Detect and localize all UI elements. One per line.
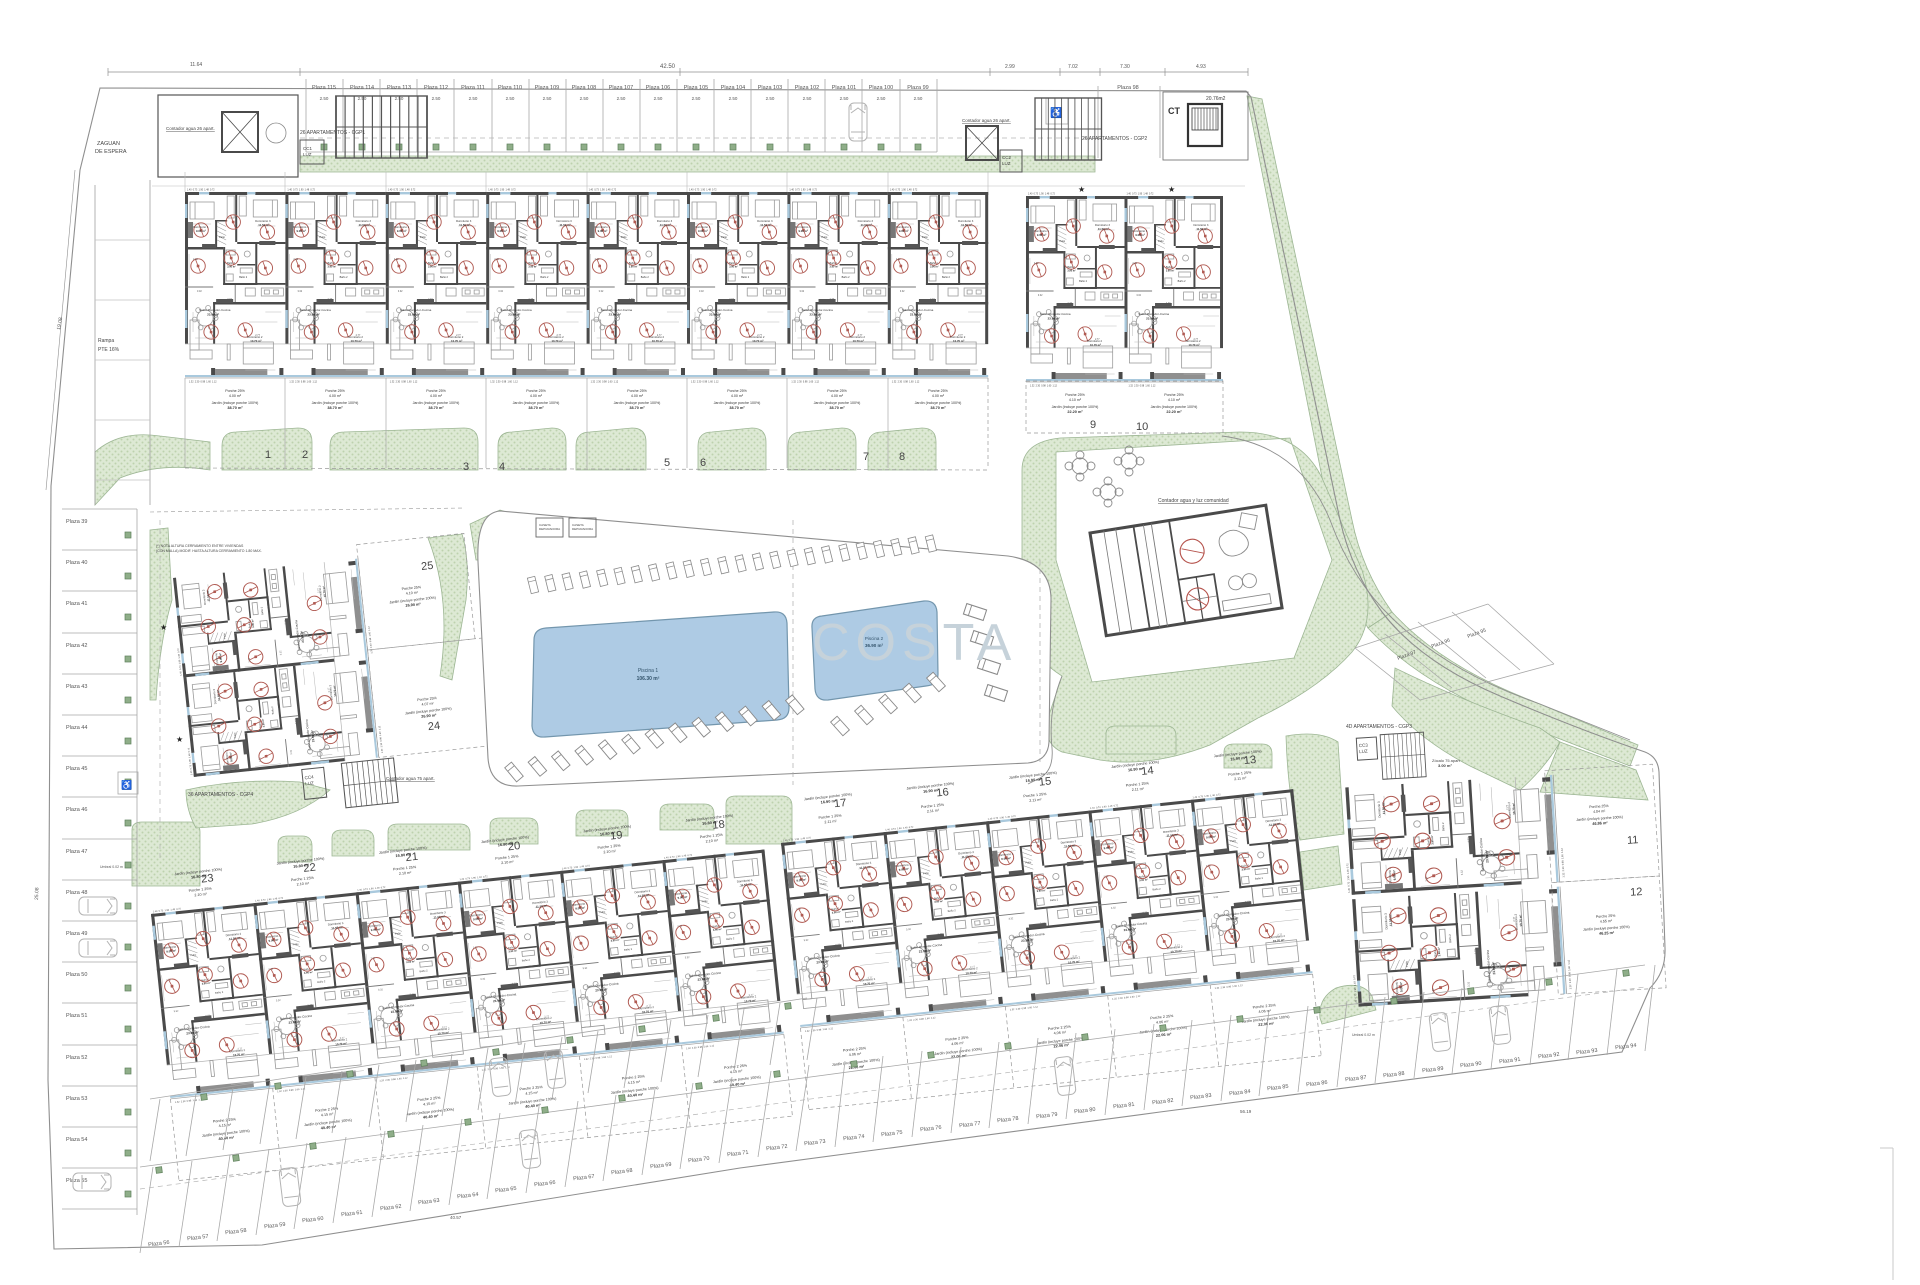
svg-text:4.00 m²: 4.00 m²	[631, 394, 644, 398]
svg-text:Plaza 112: Plaza 112	[424, 85, 448, 91]
svg-text:Porche 25%: Porche 25%	[225, 389, 245, 393]
svg-text:4.00 m²: 4.00 m²	[530, 394, 543, 398]
svg-text:3.00 m²: 3.00 m²	[1438, 763, 1452, 768]
svg-text:(CON MALLA) MODIF. HASTA ALTUR: (CON MALLA) MODIF. HASTA ALTURA CERRAMIE…	[156, 549, 262, 553]
svg-text:Contador agua y luz comunidad: Contador agua y luz comunidad	[1158, 498, 1229, 504]
svg-text:Plaza 42: Plaza 42	[66, 643, 87, 649]
svg-text:Plaza 39: Plaza 39	[66, 519, 87, 525]
svg-text:LUZ: LUZ	[1002, 161, 1011, 166]
svg-text:2.50: 2.50	[803, 96, 812, 101]
svg-text:4.10 m²: 4.10 m²	[1069, 398, 1082, 402]
svg-text:22.20 m²: 22.20 m²	[1067, 410, 1083, 414]
svg-text:10: 10	[1136, 421, 1148, 433]
svg-text:2.50: 2.50	[580, 96, 589, 101]
svg-text:42.50: 42.50	[660, 64, 676, 70]
svg-text:6: 6	[700, 457, 706, 469]
svg-text:Porche 25%: Porche 25%	[1164, 393, 1184, 397]
svg-text:Porche 25%: Porche 25%	[727, 389, 747, 393]
svg-text:Plaza 100: Plaza 100	[869, 85, 893, 91]
svg-text:(*) NOTA ALTURA CERRAMIENTO EN: (*) NOTA ALTURA CERRAMIENTO ENTRE VIVIEN…	[156, 544, 244, 548]
svg-text:CC4: CC4	[304, 774, 314, 780]
svg-text:7.30: 7.30	[1120, 64, 1130, 70]
svg-text:Plaza 102: Plaza 102	[795, 85, 819, 91]
svg-text:PTE 16%: PTE 16%	[98, 347, 120, 353]
svg-text:40.57: 40.57	[450, 1215, 462, 1220]
svg-text:2.50: 2.50	[877, 96, 886, 101]
svg-text:4.00 m²: 4.00 m²	[731, 394, 744, 398]
svg-text:2.50: 2.50	[506, 96, 515, 101]
svg-text:DEPURADORA: DEPURADORA	[539, 527, 560, 531]
svg-text:2.50: 2.50	[766, 96, 775, 101]
svg-text:Plaza 101: Plaza 101	[832, 85, 856, 91]
svg-text:CC2: CC2	[1002, 155, 1011, 160]
svg-text:Porche 25%: Porche 25%	[928, 389, 948, 393]
svg-text:Porche 25%: Porche 25%	[526, 389, 546, 393]
svg-text:11.64: 11.64	[190, 62, 202, 68]
svg-text:★: ★	[1168, 185, 1175, 194]
svg-text:26 APARTAMENTOS - CGP2: 26 APARTAMENTOS - CGP2	[1082, 136, 1147, 142]
svg-text:Jardín (incluye porche 100%): Jardín (incluye porche 100%)	[513, 401, 560, 405]
svg-text:Plaza 108: Plaza 108	[572, 85, 596, 91]
svg-text:11: 11	[1627, 834, 1639, 847]
svg-text:Plaza 111: Plaza 111	[461, 85, 485, 91]
svg-text:7.02: 7.02	[1068, 64, 1078, 70]
svg-text:20.76m2: 20.76m2	[1206, 96, 1226, 102]
svg-text:Jardín (incluye porche 100%): Jardín (incluye porche 100%)	[915, 401, 962, 405]
svg-text:4.04 m²: 4.04 m²	[1593, 809, 1606, 814]
svg-text:5: 5	[664, 457, 670, 469]
svg-text:Plaza 103: Plaza 103	[758, 85, 782, 91]
svg-text:Jardín (incluye porche 100%): Jardín (incluye porche 100%)	[814, 401, 861, 405]
svg-text:25: 25	[421, 560, 434, 573]
svg-text:4.00 m²: 4.00 m²	[932, 394, 945, 398]
svg-text:LUZ: LUZ	[305, 780, 314, 786]
svg-text:DE ESPERA: DE ESPERA	[95, 149, 127, 155]
svg-text:106.30 m²: 106.30 m²	[637, 676, 660, 682]
svg-text:38.70 m²: 38.70 m²	[428, 406, 444, 410]
svg-text:38.70 m²: 38.70 m²	[930, 406, 946, 410]
svg-text:2.50: 2.50	[654, 96, 663, 101]
svg-text:Jardín (incluye porche 100%): Jardín (incluye porche 100%)	[1151, 405, 1198, 409]
svg-text:Plaza 105: Plaza 105	[684, 85, 708, 91]
svg-text:56.19: 56.19	[1240, 1109, 1252, 1114]
svg-text:♿: ♿	[121, 779, 132, 790]
svg-text:Porche 25%: Porche 25%	[627, 389, 647, 393]
svg-text:Umbral 0.02 m: Umbral 0.02 m	[100, 865, 123, 869]
svg-text:CC3: CC3	[1359, 743, 1369, 749]
svg-text:CT: CT	[1168, 106, 1180, 116]
svg-text:38.70 m²: 38.70 m²	[629, 406, 645, 410]
svg-text:★: ★	[1078, 185, 1085, 194]
svg-text:36 APARTAMENTOS - CGP4: 36 APARTAMENTOS - CGP4	[188, 792, 253, 798]
svg-text:Jardín (incluye porche 100%): Jardín (incluye porche 100%)	[413, 401, 460, 405]
svg-text:Contador agua 75 apart.: Contador agua 75 apart.	[386, 776, 435, 781]
svg-text:Plaza 46: Plaza 46	[66, 807, 87, 813]
svg-text:ZAGUAN: ZAGUAN	[97, 141, 120, 147]
svg-text:Jardín (incluye porche 100%): Jardín (incluye porche 100%)	[1052, 405, 1099, 409]
svg-text:Plaza 53: Plaza 53	[66, 1096, 87, 1102]
svg-text:Plaza 106: Plaza 106	[646, 85, 670, 91]
svg-text:★: ★	[176, 735, 183, 744]
svg-text:12: 12	[1630, 886, 1643, 899]
svg-text:Plaza 109: Plaza 109	[535, 85, 559, 91]
svg-text:2.50: 2.50	[469, 96, 478, 101]
svg-text:Jardín (incluye porche 100%): Jardín (incluye porche 100%)	[714, 401, 761, 405]
svg-text:Porche 25%: Porche 25%	[426, 389, 446, 393]
svg-text:Plaza 40: Plaza 40	[66, 560, 87, 566]
svg-text:Plaza 107: Plaza 107	[609, 85, 633, 91]
svg-text:25.08: 25.08	[34, 887, 40, 900]
svg-text:Contador agua 26 apart.: Contador agua 26 apart.	[962, 118, 1011, 123]
svg-text:4.00 m²: 4.00 m²	[430, 394, 443, 398]
svg-text:Jardín (incluye porche 100%): Jardín (incluye porche 100%)	[614, 401, 661, 405]
svg-text:22.20 m²: 22.20 m²	[1166, 410, 1182, 414]
svg-text:Jardín (incluye porche 100%): Jardín (incluye porche 100%)	[312, 401, 359, 405]
svg-text:4.93: 4.93	[1196, 64, 1206, 70]
svg-text:Piscina 1: Piscina 1	[638, 668, 659, 674]
svg-text:2.50: 2.50	[432, 96, 441, 101]
svg-text:Plaza 45: Plaza 45	[66, 766, 87, 772]
svg-text:Plaza 113: Plaza 113	[387, 85, 411, 91]
svg-text:Plaza 41: Plaza 41	[66, 601, 87, 607]
svg-text:26 APARTAMENTOS - CGP1: 26 APARTAMENTOS - CGP1	[300, 130, 365, 136]
svg-text:Jardín (incluye porche 100%): Jardín (incluye porche 100%)	[212, 401, 259, 405]
svg-text:2.50: 2.50	[617, 96, 626, 101]
svg-text:Plaza 114: Plaza 114	[350, 85, 374, 91]
svg-text:2.50: 2.50	[729, 96, 738, 101]
svg-text:2.99: 2.99	[1005, 64, 1015, 70]
svg-text:4: 4	[499, 461, 505, 473]
svg-text:4.00 m²: 4.00 m²	[229, 394, 242, 398]
svg-text:2.50: 2.50	[840, 96, 849, 101]
svg-text:DEPURADORA: DEPURADORA	[572, 527, 593, 531]
svg-text:Plaza 115: Plaza 115	[312, 85, 336, 91]
svg-text:Plaza 51: Plaza 51	[66, 1013, 87, 1019]
svg-text:38.70 m²: 38.70 m²	[729, 406, 745, 410]
svg-text:2.50: 2.50	[914, 96, 923, 101]
svg-text:4.10 m²: 4.10 m²	[1168, 398, 1181, 402]
svg-text:Plaza 52: Plaza 52	[66, 1055, 87, 1061]
svg-text:Contador agua 26 apart.: Contador agua 26 apart.	[166, 126, 215, 131]
svg-text:Rampa: Rampa	[98, 338, 114, 344]
svg-text:Plaza 98: Plaza 98	[1117, 85, 1138, 91]
svg-text:Plaza 50: Plaza 50	[66, 972, 87, 978]
svg-text:Umbral 0.02 m: Umbral 0.02 m	[1352, 1033, 1375, 1037]
svg-text:Plaza 49: Plaza 49	[66, 931, 87, 937]
svg-text:Plaza 47: Plaza 47	[66, 849, 87, 855]
svg-text:2.50: 2.50	[320, 96, 329, 101]
svg-text:Porche 25%: Porche 25%	[1065, 393, 1085, 397]
svg-text:3: 3	[463, 461, 469, 473]
svg-text:LUZ: LUZ	[303, 152, 312, 157]
svg-text:LUZ: LUZ	[1359, 749, 1368, 755]
svg-text:38.70 m²: 38.70 m²	[327, 406, 343, 410]
svg-text:Porche 25%: Porche 25%	[325, 389, 345, 393]
svg-text:7: 7	[863, 451, 869, 463]
svg-text:Plaza 104: Plaza 104	[721, 85, 745, 91]
svg-text:2.50: 2.50	[358, 96, 367, 101]
svg-text:38.70 m²: 38.70 m²	[829, 406, 845, 410]
svg-text:Plaza 55: Plaza 55	[66, 1178, 87, 1184]
svg-text:38.70 m²: 38.70 m²	[227, 406, 243, 410]
svg-text:2.50: 2.50	[692, 96, 701, 101]
svg-text:★: ★	[160, 623, 167, 632]
svg-text:2: 2	[302, 449, 308, 461]
svg-text:4D APARTAMENTOS - CGP3: 4D APARTAMENTOS - CGP3	[1346, 724, 1412, 730]
svg-text:Plaza 99: Plaza 99	[907, 85, 928, 91]
svg-text:COSTA: COSTA	[812, 614, 1017, 672]
svg-text:Plaza 48: Plaza 48	[66, 890, 87, 896]
svg-text:9: 9	[1090, 419, 1096, 431]
svg-text:Plaza 44: Plaza 44	[66, 725, 87, 731]
svg-text:38.70 m²: 38.70 m²	[528, 406, 544, 410]
svg-text:♿: ♿	[1050, 106, 1062, 119]
svg-text:1: 1	[265, 449, 271, 461]
svg-text:2.50: 2.50	[543, 96, 552, 101]
svg-text:4.00 m²: 4.00 m²	[831, 394, 844, 398]
svg-text:8: 8	[899, 451, 905, 463]
svg-text:4.55 m²: 4.55 m²	[1600, 919, 1613, 924]
svg-text:4.00 m²: 4.00 m²	[329, 394, 342, 398]
svg-text:Plaza 110: Plaza 110	[498, 85, 522, 91]
svg-text:Plaza 43: Plaza 43	[66, 684, 87, 690]
svg-text:24: 24	[427, 720, 440, 733]
svg-text:Porche 25%: Porche 25%	[827, 389, 847, 393]
svg-text:CC1: CC1	[303, 146, 312, 151]
svg-text:Plaza 54: Plaza 54	[66, 1137, 87, 1143]
